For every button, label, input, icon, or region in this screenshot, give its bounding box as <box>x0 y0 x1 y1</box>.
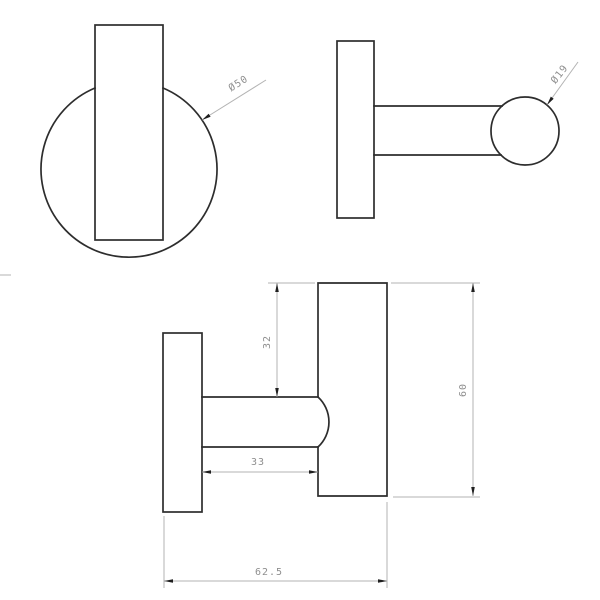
dim-60-arrow-down-icon <box>471 487 475 496</box>
dim-33-arrow-left-icon <box>202 470 211 474</box>
side-view: Ø19 <box>337 41 578 218</box>
dim-62-5-arrow-right-icon <box>378 579 387 583</box>
enlarged-knob-bulge-arc <box>318 397 329 447</box>
front-view: Ø50 <box>41 25 266 257</box>
plate-diameter-label: Ø50 <box>226 73 250 94</box>
dimension-32: 32 <box>262 283 315 397</box>
dimension-62-5: 62.5 <box>164 502 387 588</box>
dim-60-label: 60 <box>458 383 469 397</box>
dimension-33: 33 <box>202 457 318 474</box>
dim-60-arrow-up-icon <box>471 283 475 292</box>
plate-diameter-leader-arrow-icon <box>202 114 211 120</box>
knob-diameter-label: Ø19 <box>548 62 570 86</box>
dimension-60: 60 <box>391 283 480 497</box>
side-view-knob-circle <box>491 97 559 165</box>
dim-62-5-arrow-left-icon <box>164 579 173 583</box>
enlarged-wall-plate <box>163 333 202 512</box>
dim-33-label: 33 <box>251 457 265 468</box>
dim-62-5-label: 62.5 <box>255 567 283 578</box>
side-view-wall-plate <box>337 41 374 218</box>
drawing-sheet: Ø50 Ø19 32 <box>0 0 600 600</box>
technical-drawing: Ø50 Ø19 32 <box>0 0 600 600</box>
front-view-hook-body <box>95 25 163 240</box>
enlarged-hook-bar <box>318 283 387 496</box>
front-view-wall-plate-circle <box>41 88 217 257</box>
dim-32-label: 32 <box>262 335 273 349</box>
enlarged-side-view <box>163 283 387 512</box>
dim-32-arrow-down-icon <box>275 388 279 397</box>
dim-32-arrow-up-icon <box>275 283 279 292</box>
dim-33-arrow-right-icon <box>309 470 318 474</box>
